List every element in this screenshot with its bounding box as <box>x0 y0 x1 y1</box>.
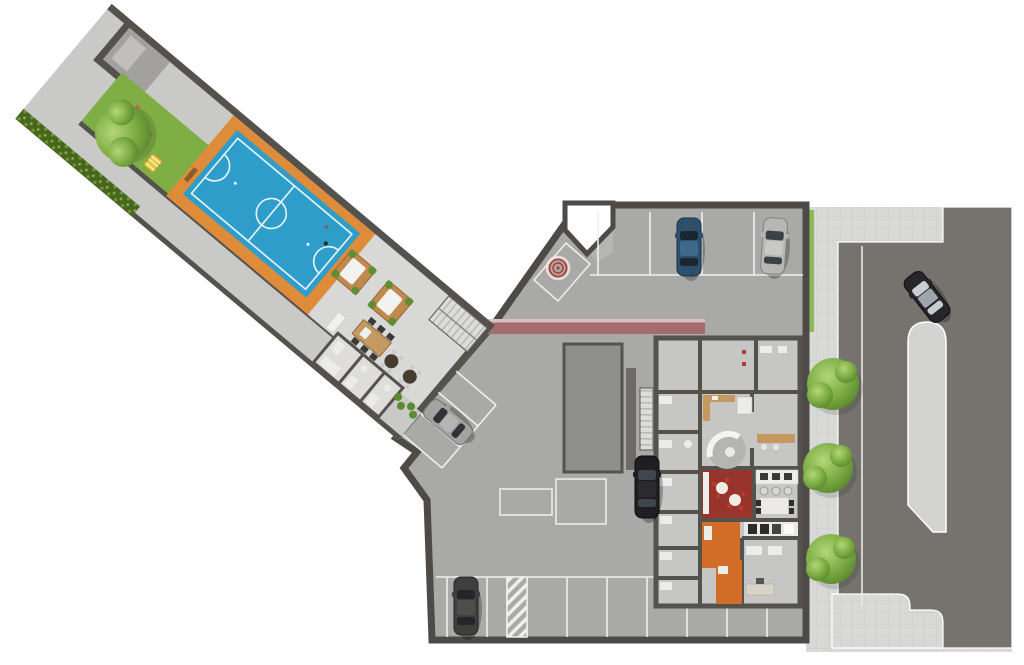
appliance <box>737 397 752 414</box>
white-table <box>760 498 788 514</box>
lounge-sideboard <box>703 472 709 514</box>
fixture <box>746 546 762 555</box>
fixture <box>768 546 782 555</box>
stool <box>773 444 779 450</box>
low-wall <box>626 368 636 470</box>
desk <box>746 584 774 595</box>
bar-stool <box>760 487 768 495</box>
median-island <box>908 322 946 532</box>
appliance <box>748 524 757 534</box>
street-trees <box>803 358 863 589</box>
bar-sink <box>772 473 780 480</box>
bar-sink <box>760 473 768 480</box>
amenity-wing <box>15 4 494 440</box>
fixture <box>718 566 728 574</box>
fire-equipment-icon <box>742 350 746 354</box>
no-parking-hatch <box>507 577 527 637</box>
counter-item <box>712 396 718 400</box>
reception-counter <box>703 395 710 421</box>
stool <box>761 444 767 450</box>
building-core <box>656 338 800 606</box>
ramp-slab <box>564 344 622 472</box>
car-dark-blue <box>675 218 705 281</box>
bar-sink <box>784 473 792 480</box>
bar-stool <box>772 487 780 495</box>
bistro-table <box>729 494 741 506</box>
fixture <box>760 346 772 353</box>
appliance <box>772 524 781 534</box>
lounge-table <box>725 447 735 457</box>
bistro-table <box>716 482 728 494</box>
appliance <box>760 524 769 534</box>
street-tree <box>807 358 863 415</box>
fire-equipment-icon <box>742 362 746 366</box>
red-wall-stripe-cap <box>488 319 705 323</box>
fixture <box>778 346 787 353</box>
car-black-central <box>633 456 663 523</box>
fixture <box>704 526 712 540</box>
plan-canvas <box>0 0 1024 665</box>
wood-bench <box>757 434 795 443</box>
appliance <box>784 524 794 534</box>
bar-stool <box>784 487 792 495</box>
floor-plan-render <box>0 0 1024 665</box>
desk-chair <box>756 578 764 584</box>
car-dark-gray <box>452 577 482 640</box>
